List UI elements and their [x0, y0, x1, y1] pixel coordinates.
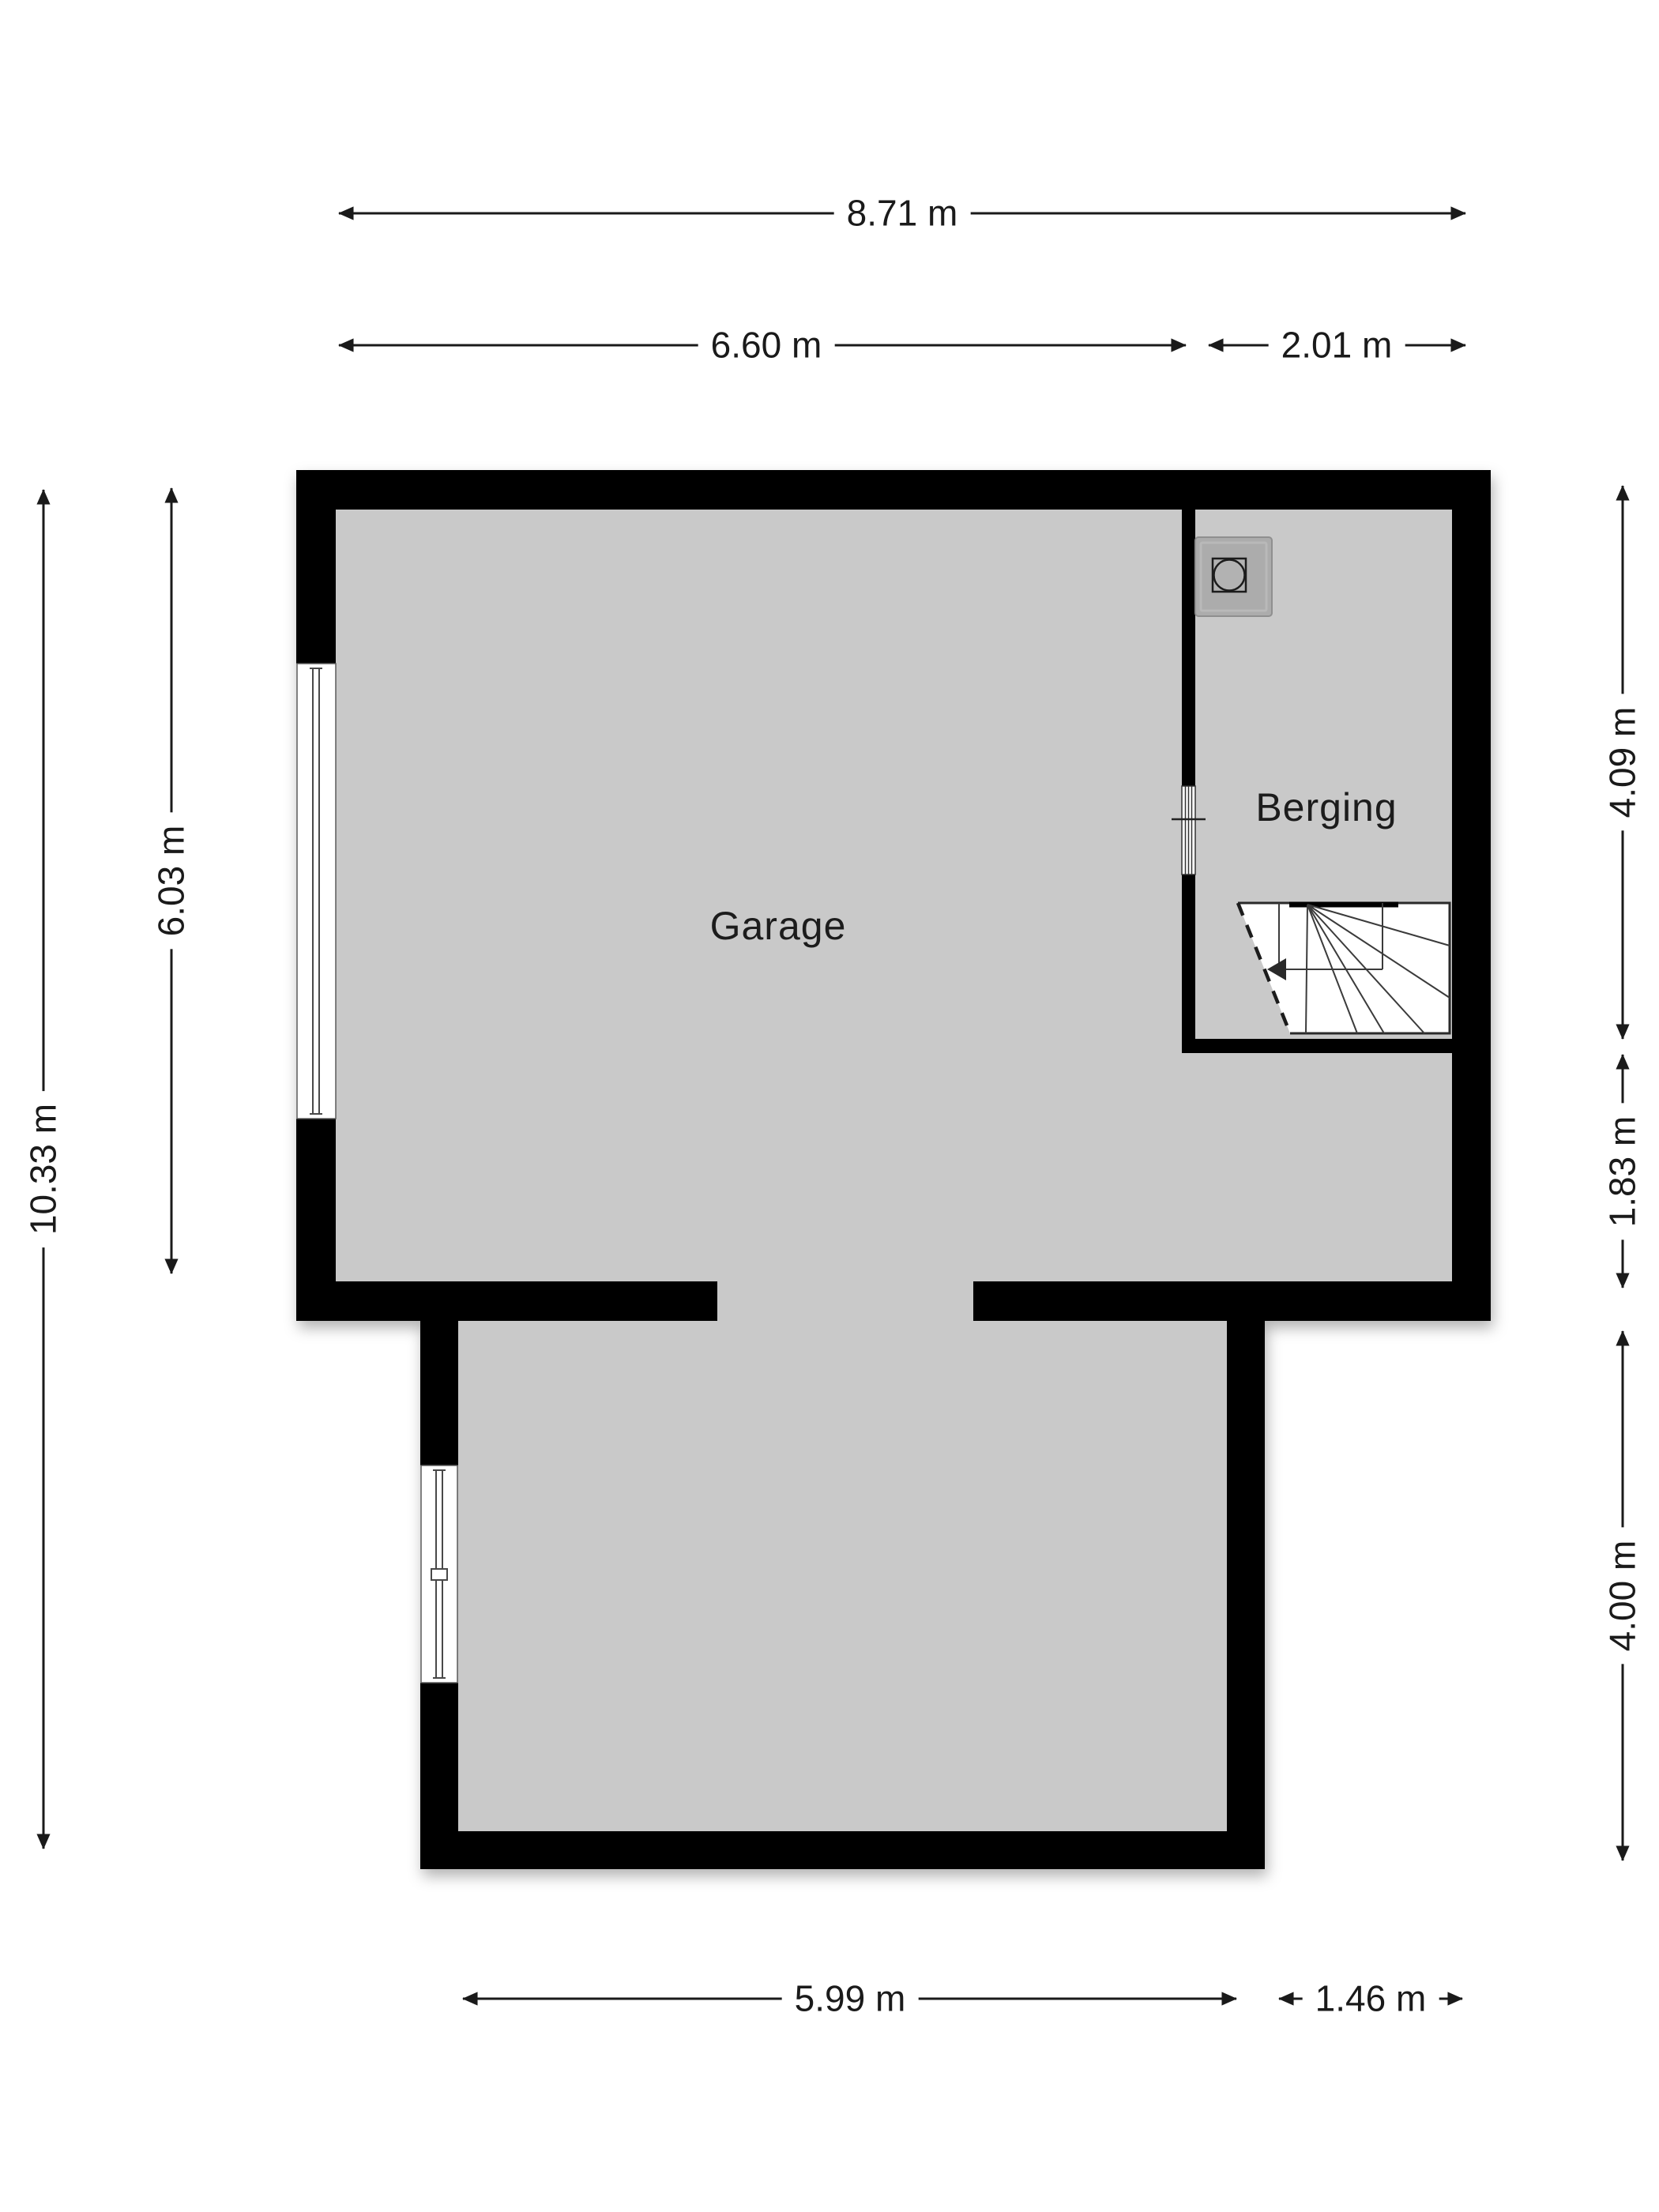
- garage-window: [297, 664, 336, 1119]
- wall-berging-divider-lower: [1182, 875, 1195, 1053]
- wall-garage-bottom-left: [296, 1281, 717, 1321]
- room-label-berging: Berging: [1255, 784, 1397, 830]
- wall-berging-bottom: [1182, 1039, 1452, 1053]
- room-label-garage: Garage: [710, 903, 847, 949]
- dimension-label-right-strip: 1.83 m: [1601, 1104, 1645, 1240]
- dimension-label-right-berging: 4.09 m: [1601, 694, 1645, 831]
- wall-garage-bottom-right: [973, 1281, 1491, 1321]
- building: [296, 470, 1491, 1869]
- wall-lowerroom-bottom: [420, 1831, 1265, 1869]
- dimension-label-left-garage: 6.03 m: [150, 813, 194, 950]
- wall-lowerroom-right: [1227, 1321, 1265, 1869]
- wall-lowerroom-left-upper: [420, 1321, 458, 1465]
- dimension-label-bottom-right: 1.46 m: [1303, 1977, 1439, 2021]
- wall-berging-divider-upper: [1182, 510, 1195, 786]
- dimension-label-bottom-lower: 5.99 m: [782, 1977, 919, 2021]
- dimension-label-top-berging: 2.01 m: [1269, 324, 1405, 367]
- wall-top: [296, 470, 1491, 510]
- wall-right: [1452, 470, 1491, 1319]
- wall-left-upper: [296, 470, 336, 664]
- dimension-label-top-garage: 6.60 m: [698, 324, 835, 367]
- dimension-label-left-total: 10.33 m: [22, 1091, 66, 1247]
- dimension-label-right-lower: 4.00 m: [1601, 1528, 1645, 1665]
- passage-floor: [717, 1281, 973, 1321]
- garage-floor: [336, 510, 1452, 1281]
- washing-machine-icon: [1195, 537, 1272, 616]
- lower-room-floor: [458, 1321, 1227, 1831]
- dimension-label-top-total: 8.71 m: [834, 192, 971, 235]
- lower-room-window: [421, 1465, 457, 1683]
